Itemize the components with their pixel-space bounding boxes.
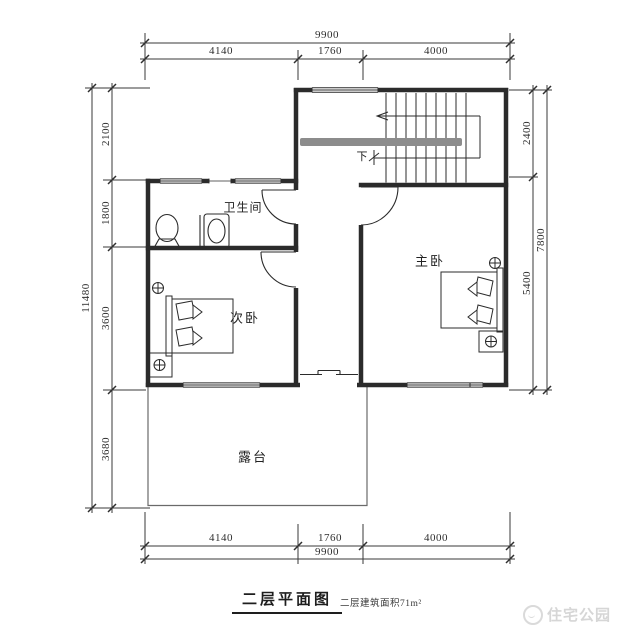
wall-lamp-icon bbox=[154, 360, 165, 371]
stairs-down-label: 下 bbox=[357, 148, 368, 164]
dimension-ticks bbox=[88, 39, 551, 563]
dim-left-total: 11480 bbox=[80, 283, 92, 313]
dim-bottom-seg3: 4000 bbox=[424, 532, 448, 544]
bed bbox=[441, 272, 497, 328]
pillow bbox=[176, 327, 195, 346]
blanket-fold bbox=[193, 331, 202, 345]
drawing-area-note: 二层建筑面积71m² bbox=[340, 595, 422, 609]
toilet-icon bbox=[204, 214, 229, 248]
dim-bottom-total: 9900 bbox=[315, 546, 339, 558]
dim-bottom-seg1: 4140 bbox=[209, 532, 233, 544]
bed-headboard bbox=[166, 296, 172, 356]
master-bedroom-furniture bbox=[441, 258, 503, 353]
room-label-terrace: 露台 bbox=[238, 447, 268, 466]
terrace-door-threshold bbox=[300, 371, 358, 375]
pillow bbox=[176, 301, 195, 320]
wall-lamp-icon bbox=[486, 336, 497, 347]
blanket-fold bbox=[193, 305, 202, 319]
watermark: 住宅公园 bbox=[523, 604, 611, 625]
dim-right-total: 7800 bbox=[535, 228, 547, 252]
drawing-title: 二层平面图 bbox=[232, 588, 342, 614]
dim-left-seg1: 2100 bbox=[100, 122, 112, 146]
sink-icon bbox=[154, 215, 180, 249]
stairs bbox=[300, 93, 480, 183]
wall-lamp-icon bbox=[153, 283, 164, 294]
dim-right-seg1: 2400 bbox=[521, 121, 533, 145]
dim-right-seg2: 5400 bbox=[521, 271, 533, 295]
doors bbox=[261, 187, 398, 375]
blanket-fold bbox=[468, 282, 477, 296]
bed bbox=[172, 299, 233, 353]
stair-handrail bbox=[300, 138, 462, 146]
dimension-lines bbox=[85, 33, 552, 564]
bed-headboard bbox=[497, 268, 503, 332]
dim-left-seg3: 3600 bbox=[100, 306, 112, 330]
dim-left-seg4: 3680 bbox=[100, 437, 112, 461]
floor-plan-page: 9900 4140 1760 4000 4140 1760 4000 9900 … bbox=[0, 0, 638, 638]
dim-top-total: 9900 bbox=[315, 29, 339, 41]
dim-top-seg3: 4000 bbox=[424, 45, 448, 57]
dim-top-seg2: 1760 bbox=[318, 45, 342, 57]
pillow bbox=[475, 277, 493, 296]
watermark-logo-icon bbox=[523, 605, 543, 625]
room-label-secondary-bedroom: 次卧 bbox=[230, 308, 260, 327]
room-label-bathroom: 卫生间 bbox=[223, 199, 262, 216]
room-label-master-bedroom: 主卧 bbox=[415, 251, 445, 270]
dim-top-seg1: 4140 bbox=[209, 45, 233, 57]
dim-left-seg2: 1800 bbox=[100, 201, 112, 225]
watermark-brand: 住宅公园 bbox=[547, 604, 611, 625]
dim-bottom-seg2: 1760 bbox=[318, 532, 342, 544]
blanket-fold bbox=[468, 310, 477, 324]
secondary-bedroom-furniture bbox=[147, 283, 233, 378]
pillow bbox=[475, 305, 493, 324]
windows bbox=[160, 87, 483, 387]
wall-lamp-icon bbox=[490, 258, 501, 269]
bathroom-fixtures bbox=[154, 214, 229, 248]
